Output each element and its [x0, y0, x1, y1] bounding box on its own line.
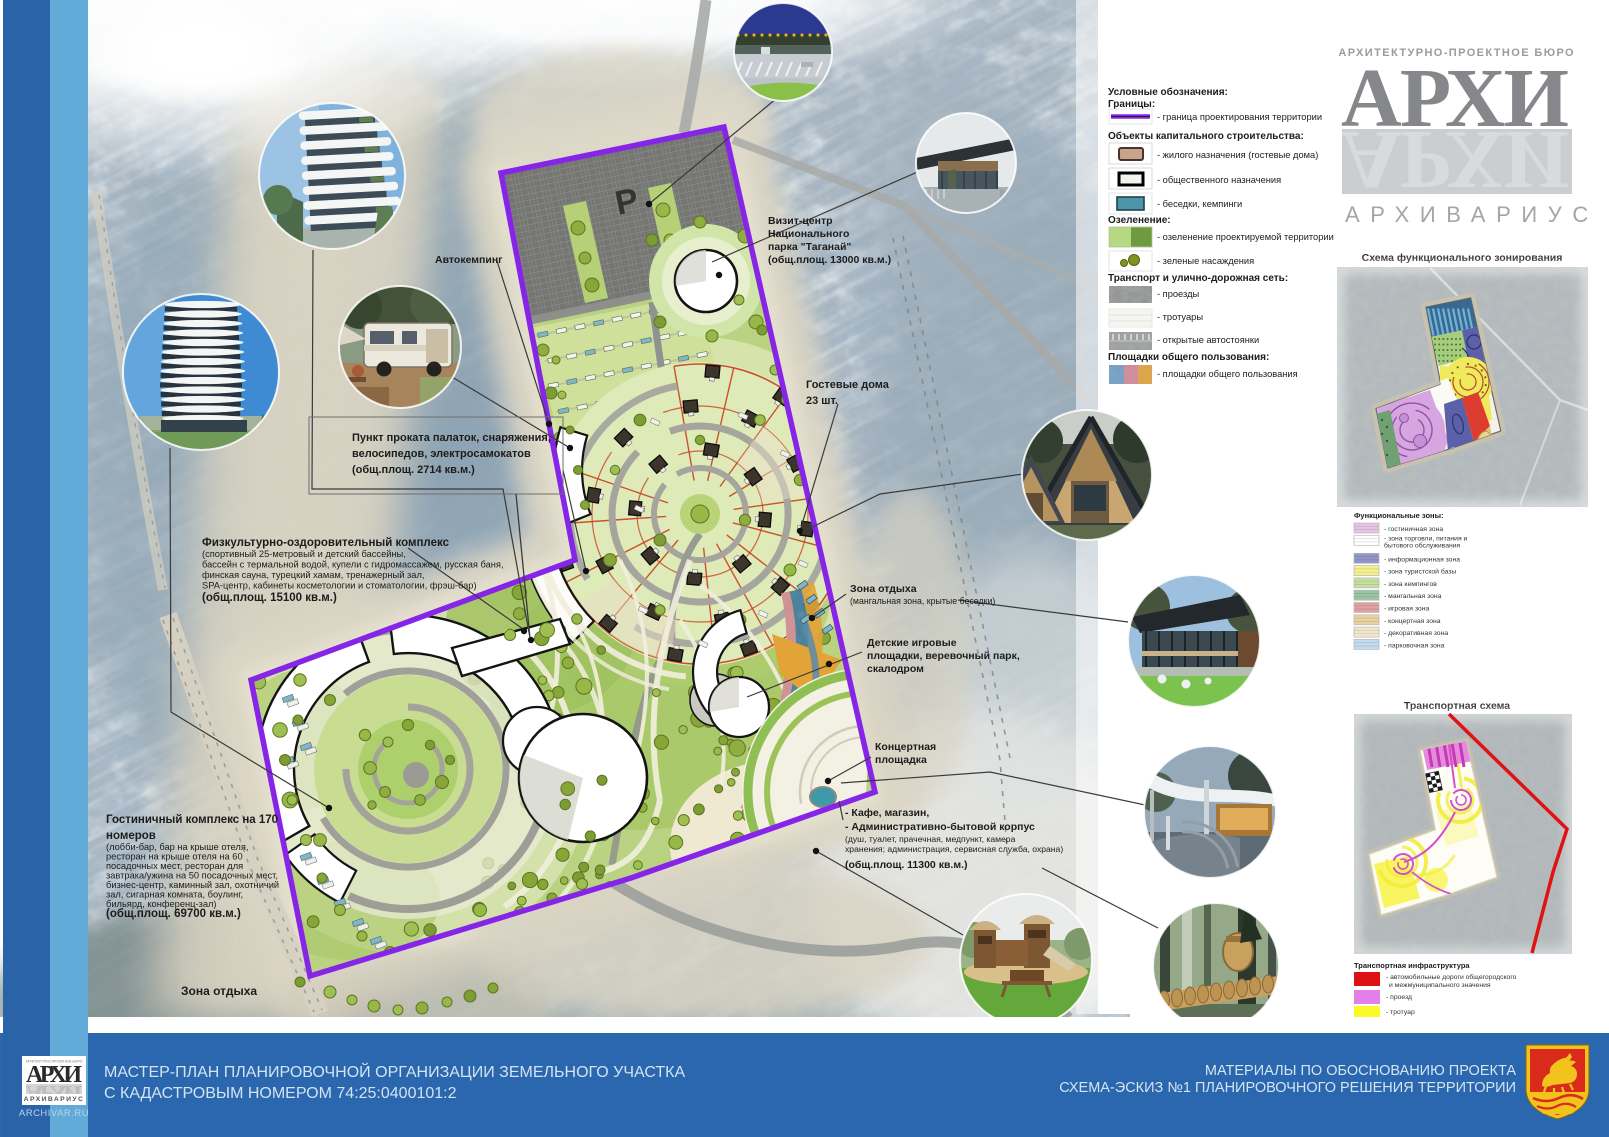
- svg-text:парка "Таганай": парка "Таганай": [768, 241, 851, 253]
- svg-text:финская сауна, турецкий хамам,: финская сауна, турецкий хамам, тренажерн…: [202, 570, 424, 580]
- svg-text:- общественного назначения: - общественного назначения: [1157, 175, 1281, 185]
- svg-text:Зона отдыха: Зона отдыха: [850, 583, 917, 595]
- svg-text:СХЕМА-ЭСКИЗ №1 ПЛАНИРОВОЧНОГО: СХЕМА-ЭСКИЗ №1 ПЛАНИРОВОЧНОГО РЕШЕНИЯ ТЕ…: [1059, 1080, 1516, 1096]
- svg-text:- концертная зона: - концертная зона: [1384, 618, 1441, 625]
- svg-text:Гостиничный комплекс на 170: Гостиничный комплекс на 170: [106, 814, 278, 826]
- svg-text:(общ.площ. 11300 кв.м.): (общ.площ. 11300 кв.м.): [845, 859, 968, 871]
- svg-text:- зона туристской базы: - зона туристской базы: [1384, 568, 1456, 576]
- svg-text:- зона кемпингов: - зона кемпингов: [1384, 581, 1437, 588]
- svg-text:- декоративная зона: - декоративная зона: [1384, 630, 1448, 637]
- svg-text:- жилого назначения (гостевые: - жилого назначения (гостевые дома): [1157, 150, 1318, 160]
- svg-text:зал, сигарная комната, боулинг: зал, сигарная комната, боулинг,: [106, 890, 243, 900]
- svg-text:бытового обслуживания: бытового обслуживания: [1384, 541, 1461, 549]
- svg-text:- автомобильные дороги общегор: - автомобильные дороги общегородского: [1386, 973, 1517, 981]
- svg-text:- информационная зона: - информационная зона: [1384, 556, 1460, 563]
- svg-text:Объекты капитального строитель: Объекты капитального строительства:: [1108, 130, 1304, 142]
- svg-text:Автокемпинг: Автокемпинг: [435, 254, 503, 266]
- svg-text:Условные обозначения:: Условные обозначения:: [1108, 86, 1228, 98]
- svg-text:- проезды: - проезды: [1157, 289, 1200, 299]
- svg-text:- игровая зона: - игровая зона: [1384, 606, 1429, 613]
- svg-text:(мангальная зона, крытые бесед: (мангальная зона, крытые беседки): [850, 596, 995, 606]
- svg-text:Транспорт и улично-дорожная се: Транспорт и улично-дорожная сеть:: [1108, 273, 1288, 284]
- svg-text:Зона отдыха: Зона отдыха: [181, 984, 257, 998]
- svg-text:- зона торговли, питания и: - зона торговли, питания и: [1384, 535, 1468, 542]
- svg-text:- мангальная зона: - мангальная зона: [1384, 593, 1442, 600]
- svg-text:площадки, веревочный парк,: площадки, веревочный парк,: [867, 650, 1020, 662]
- svg-text:МАСТЕР-ПЛАН ПЛАНИРОВОЧНОЙ ОРГА: МАСТЕР-ПЛАН ПЛАНИРОВОЧНОЙ ОРГАНИЗАЦИИ ЗЕ…: [104, 1062, 685, 1081]
- svg-text:АРХИВАРИУС: АРХИВАРИУС: [24, 1096, 85, 1103]
- svg-text:- проезд: - проезд: [1386, 994, 1412, 1001]
- svg-text:Функциональные зоны:: Функциональные зоны:: [1354, 511, 1443, 520]
- svg-text:завтрака/ужина на 50 посадочны: завтрака/ужина на 50 посадочных мест,: [106, 871, 278, 881]
- svg-text:- парковочная зона: - парковочная зона: [1384, 642, 1445, 649]
- svg-text:- озеленение проектируемой тер: - озеленение проектируемой территории: [1157, 232, 1334, 242]
- svg-text:SPA-центр, кабинеты косметолог: SPA-центр, кабинеты косметологии и стома…: [202, 581, 477, 591]
- svg-text:велосипедов, электросамокатов: велосипедов, электросамокатов: [352, 448, 531, 460]
- svg-text:С КАДАСТРОВЫМ НОМЕРОМ 74:25:04: С КАДАСТРОВЫМ НОМЕРОМ 74:25:0400101:2: [104, 1085, 457, 1102]
- svg-text:Площадки общего пользования:: Площадки общего пользования:: [1108, 351, 1269, 363]
- svg-text:- Административно-бытовой корп: - Административно-бытовой корпус: [845, 821, 1035, 833]
- svg-text:Озеленение:: Озеленение:: [1108, 215, 1171, 226]
- svg-text:МАТЕРИАЛЫ ПО ОБОСНОВАНИЮ ПРОЕК: МАТЕРИАЛЫ ПО ОБОСНОВАНИЮ ПРОЕКТА: [1205, 1063, 1516, 1079]
- svg-text:(общ.площ. 2714 кв.м.): (общ.площ. 2714 кв.м.): [352, 464, 475, 476]
- svg-text:- зеленые насаждения: - зеленые насаждения: [1157, 256, 1254, 266]
- svg-text:Концертная: Концертная: [875, 741, 936, 753]
- svg-text:(общ.площ. 15100 кв.м.): (общ.площ. 15100 кв.м.): [202, 592, 337, 604]
- svg-text:Пункт проката палаток, снаряже: Пункт проката палаток, снаряжения,: [352, 432, 551, 444]
- svg-text:- беседки, кемпинги: - беседки, кемпинги: [1157, 199, 1242, 209]
- svg-text:бассейн с термальной водой, ку: бассейн с термальной водой, купели с гид…: [202, 560, 504, 570]
- svg-text:скалодром: скалодром: [867, 663, 924, 675]
- svg-text:Гостевые дома: Гостевые дома: [806, 379, 890, 391]
- svg-text:Визит-центр: Визит-центр: [768, 215, 833, 227]
- svg-text:- гостиничная зона: - гостиничная зона: [1384, 526, 1443, 533]
- svg-text:23 шт.: 23 шт.: [806, 395, 838, 407]
- svg-text:ARCHIVAR.RU: ARCHIVAR.RU: [19, 1108, 89, 1119]
- svg-text:Национального: Национального: [768, 228, 849, 240]
- svg-text:(общ.площ. 13000 кв.м.): (общ.площ. 13000 кв.м.): [768, 254, 891, 266]
- svg-text:- тротуар: - тротуар: [1386, 1009, 1415, 1016]
- svg-text:АРХИВАРИУС: АРХИВАРИУС: [1345, 202, 1599, 227]
- svg-text:ресторан на крыше отеля на 60: ресторан на крыше отеля на 60: [106, 852, 243, 862]
- svg-text:- тротуары: - тротуары: [1157, 312, 1203, 322]
- svg-text:Физкультурно-оздоровительный к: Физкультурно-оздоровительный комплекс: [202, 537, 450, 549]
- svg-text:площадка: площадка: [875, 754, 927, 766]
- svg-text:(спортивный 25-метровый и детс: (спортивный 25-метровый и детский бассей…: [202, 549, 406, 559]
- svg-text:хранения; администрация, серви: хранения; администрация, сервисная служб…: [845, 844, 1063, 854]
- svg-text:бизнес-центр, каминный зал, ох: бизнес-центр, каминный зал, охотничий: [106, 880, 279, 890]
- svg-text:(лобби-бар, бар на крыше отеля: (лобби-бар, бар на крыше отеля,: [106, 842, 248, 852]
- svg-text:номеров: номеров: [106, 830, 156, 842]
- svg-text:Транспортная инфраструктура: Транспортная инфраструктура: [1354, 961, 1470, 970]
- svg-text:Детские игровые: Детские игровые: [867, 637, 957, 649]
- svg-text:посадочных мест, ресторан для: посадочных мест, ресторан для: [106, 861, 243, 871]
- svg-text:и межмуниципального значения: и межмуниципального значения: [1389, 982, 1491, 989]
- svg-text:- Кафе, магазин,: - Кафе, магазин,: [845, 807, 929, 819]
- svg-text:- граница проектирования терри: - граница проектирования территории: [1157, 112, 1322, 122]
- svg-text:Границы:: Границы:: [1108, 99, 1155, 110]
- svg-text:(общ.площ. 69700 кв.м.): (общ.площ. 69700 кв.м.): [106, 908, 241, 920]
- svg-text:- площадки общего пользования: - площадки общего пользования: [1157, 369, 1298, 379]
- svg-text:(душ, туалет, прачечная, медпу: (душ, туалет, прачечная, медпункт, камер…: [845, 834, 1016, 844]
- svg-text:- открытые автостоянки: - открытые автостоянки: [1157, 335, 1259, 345]
